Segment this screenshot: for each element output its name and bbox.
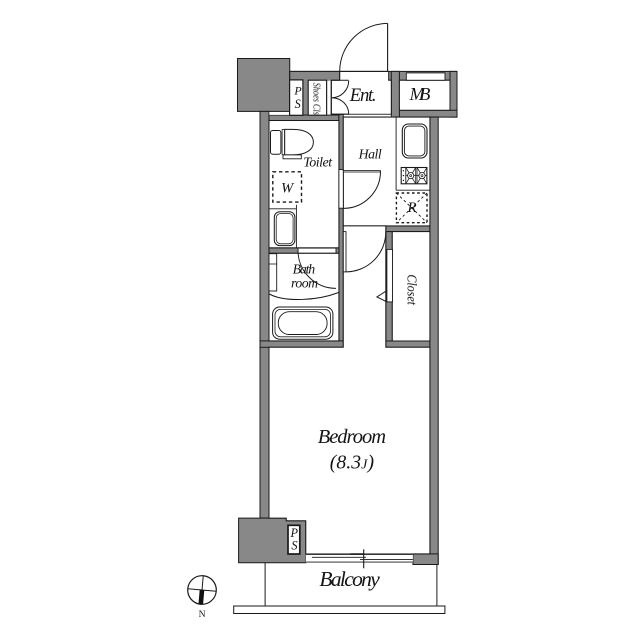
svg-text:Toilet: Toilet xyxy=(303,155,333,170)
svg-text:Bath: Bath xyxy=(293,261,316,276)
svg-text:Shoes Cls: Shoes Cls xyxy=(310,83,321,115)
svg-text:N: N xyxy=(199,610,206,620)
svg-text:S: S xyxy=(291,539,297,553)
svg-text:Hall: Hall xyxy=(358,147,382,162)
svg-text:Ent.: Ent. xyxy=(349,85,377,106)
svg-text:Closet: Closet xyxy=(405,274,420,306)
svg-text:room: room xyxy=(291,276,318,291)
svg-text:W: W xyxy=(281,181,295,197)
svg-text:(8.3J): (8.3J) xyxy=(330,452,374,474)
svg-text:Bedroom: Bedroom xyxy=(318,426,386,448)
svg-text:S: S xyxy=(295,97,301,111)
svg-text:P: P xyxy=(293,84,302,98)
svg-text:R: R xyxy=(406,200,416,216)
svg-text:Balcony: Balcony xyxy=(319,567,380,591)
svg-text:MB: MB xyxy=(409,84,431,104)
